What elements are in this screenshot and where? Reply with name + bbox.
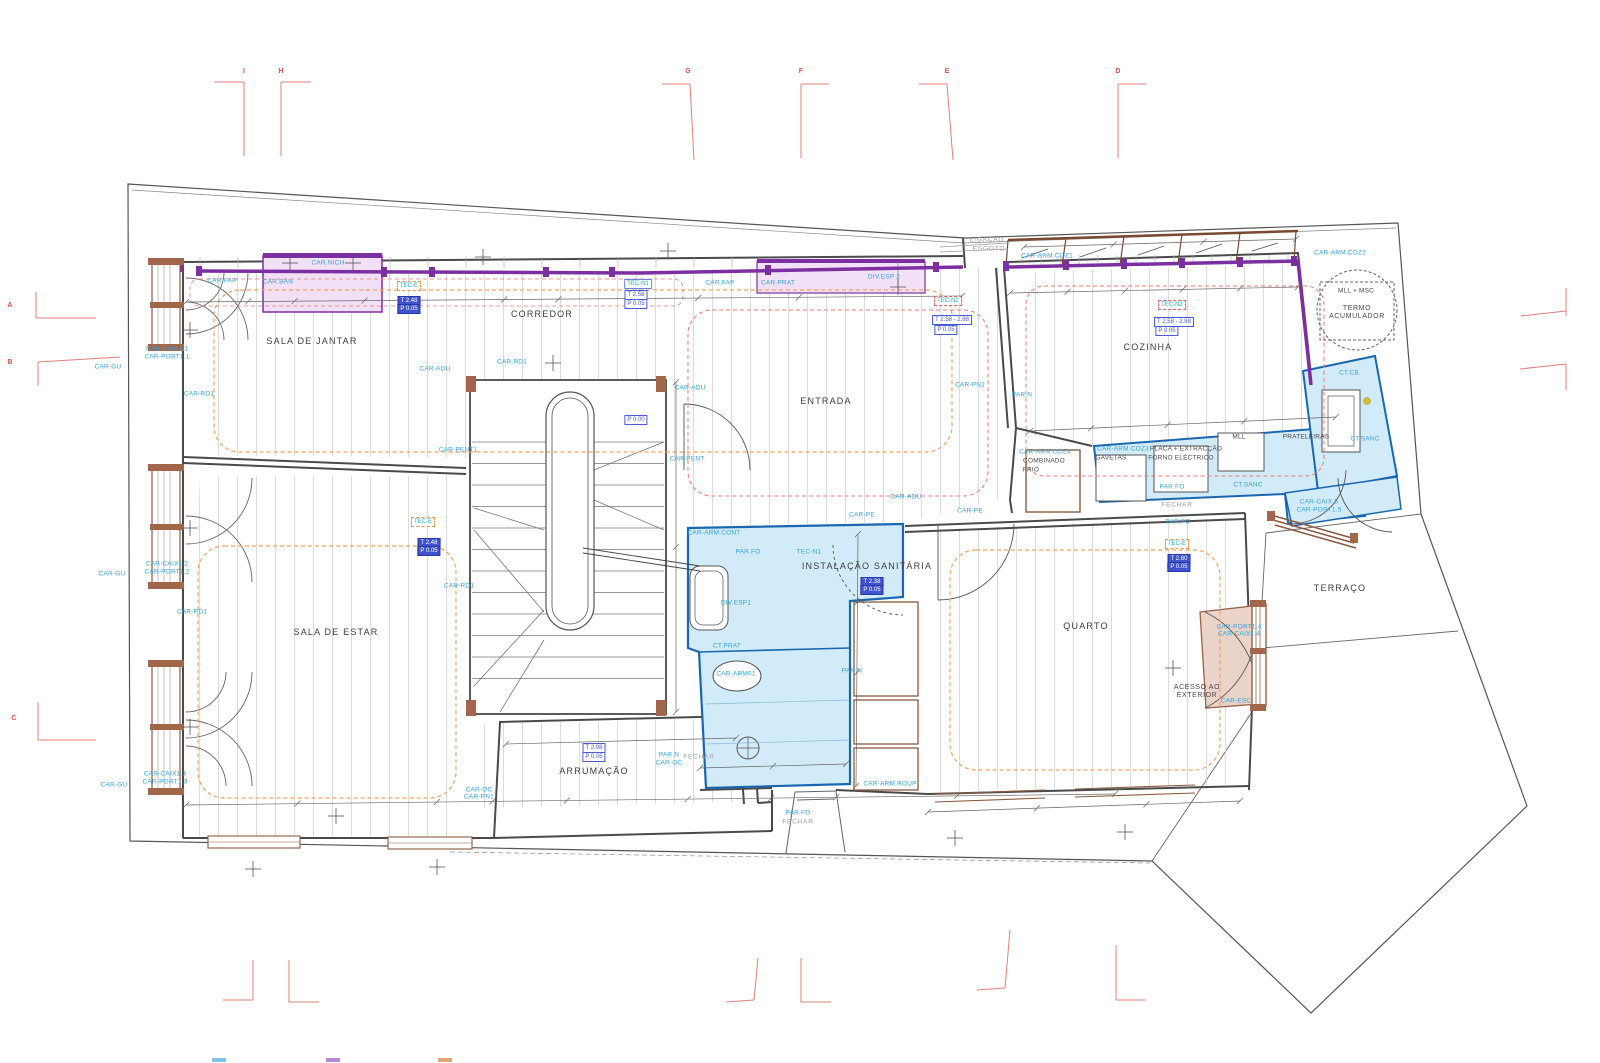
access-vestibule [1200, 600, 1266, 711]
staircase [466, 376, 700, 716]
floor-plan-linework [0, 0, 1600, 1063]
closets [854, 602, 918, 790]
floor-plan: SALA DE JANTARCORREDORENTRADACOZINHASALA… [0, 0, 1600, 1063]
